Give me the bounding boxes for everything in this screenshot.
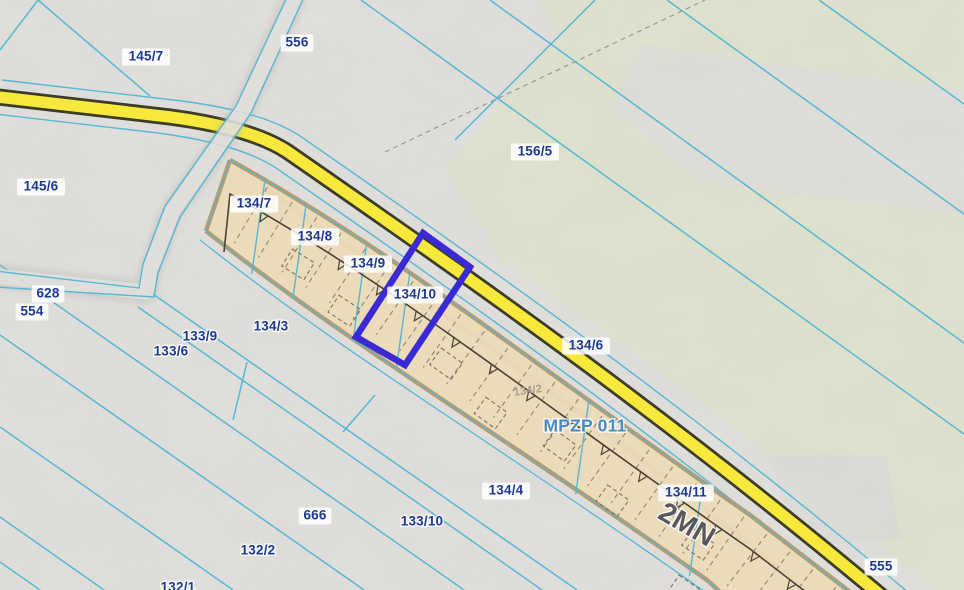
parcel-label-628: 628	[32, 286, 65, 303]
parcel-label-555: 555	[865, 559, 898, 576]
parcel-label-134-4-text: 134/4	[489, 483, 524, 498]
parcel-label-145-7: 145/7	[122, 49, 170, 66]
parcel-label-134-3-text: 134/3	[254, 319, 289, 334]
plan-label: MPZP 011	[544, 416, 627, 436]
parcel-label-133-9-text: 133/9	[183, 329, 218, 344]
parcel-label-133-6: 133/6	[154, 344, 189, 359]
parcel-label-134-6: 134/6	[562, 338, 610, 355]
parcel-label-134-10: 134/10	[387, 287, 443, 304]
parcel-label-134-9-text: 134/9	[351, 256, 386, 271]
parcel-label-628-text: 628	[36, 286, 59, 301]
parcel-label-132-2-text: 132/2	[241, 543, 276, 558]
parcel-label-156-5: 156/5	[511, 144, 559, 161]
plan-label-text: MPZP 011	[544, 416, 627, 436]
parcel-label-133-9: 133/9	[183, 329, 218, 344]
parcel-label-132-2: 132/2	[241, 543, 276, 558]
map-canvas[interactable]: 145/7556145/6628554134/7134/8134/9134/10…	[0, 0, 964, 590]
parcel-label-132-1-text: 132/1	[161, 580, 196, 590]
parcel-label-133-6-text: 133/6	[154, 344, 189, 359]
parcel-label-666-text: 666	[303, 508, 326, 523]
map-viewport[interactable]: 145/7556145/6628554134/7134/8134/9134/10…	[0, 0, 964, 590]
parcel-label-134-3: 134/3	[254, 319, 289, 334]
parcel-label-554: 554	[16, 304, 49, 321]
parcel-label-134-8-text: 134/8	[298, 229, 333, 244]
parcel-label-666: 666	[299, 508, 332, 525]
parcel-label-556-text: 556	[285, 35, 308, 50]
parcel-label-132-1: 132/1	[161, 580, 196, 590]
parcel-label-134-7-text: 134/7	[237, 196, 272, 211]
parcel-label-134-9: 134/9	[344, 256, 392, 273]
parcel-label-134-4: 134/4	[482, 483, 530, 500]
parcel-label-145-6: 145/6	[17, 179, 65, 196]
parcel-label-554-text: 554	[20, 304, 43, 319]
parcel-label-134-6-text: 134/6	[569, 338, 604, 353]
parcel-label-145-6-text: 145/6	[24, 179, 59, 194]
parcel-label-134-8: 134/8	[291, 229, 339, 246]
parcel-label-556: 556	[281, 35, 314, 52]
parcel-label-145-7-text: 145/7	[129, 49, 164, 64]
parcel-label-555-text: 555	[869, 559, 892, 574]
parcel-label-156-5-text: 156/5	[518, 144, 553, 159]
parcel-label-133-10-text: 133/10	[401, 514, 444, 529]
parcel-label-133-10: 133/10	[401, 514, 444, 529]
parcel-label-134-10-text: 134/10	[394, 287, 437, 302]
parcel-label-134-7: 134/7	[230, 196, 278, 213]
